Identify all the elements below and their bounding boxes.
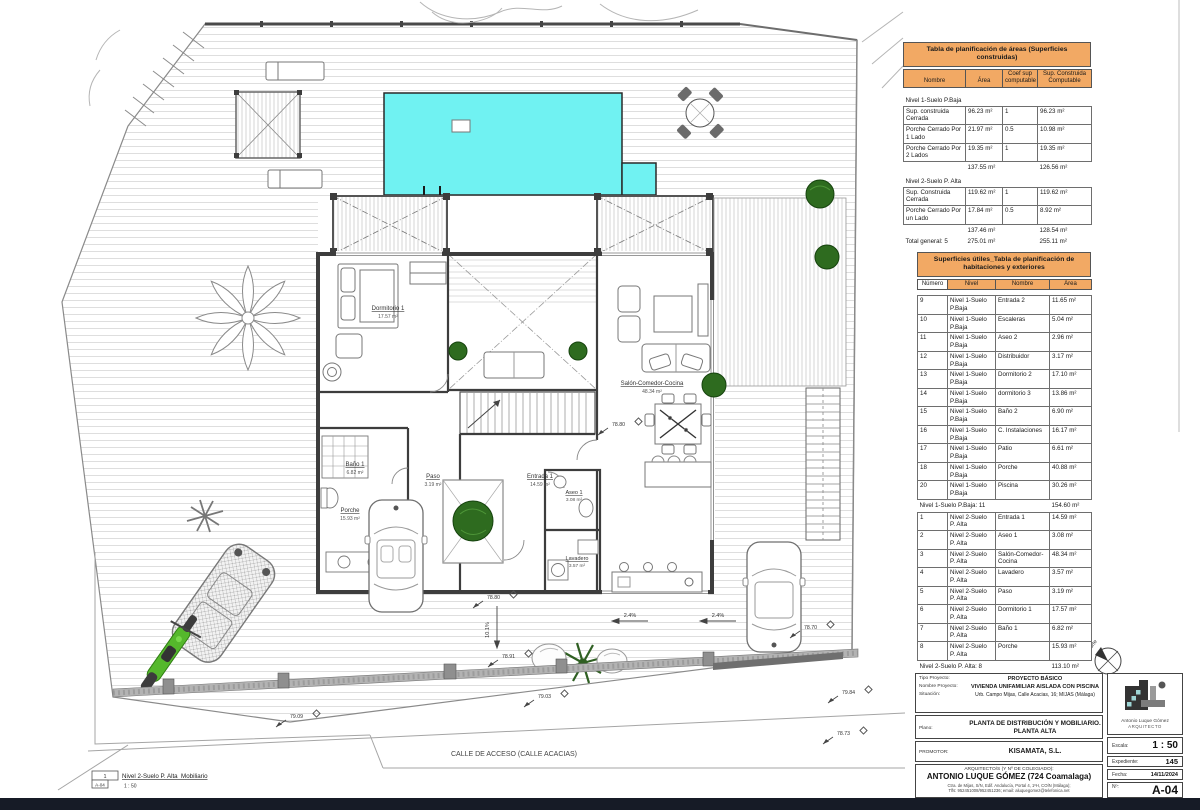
cell: 10 (918, 314, 948, 333)
cell: Nivel 2-Suelo P. Alta (948, 605, 996, 624)
cell: 1 (1003, 143, 1038, 162)
svg-text:79.09: 79.09 (290, 714, 303, 720)
cell: Nivel 1-Suelo P.Baja (948, 333, 996, 352)
rooms-table-body: 9 Nivel 1-Suelo P.Baja Entrada 2 11.65 m… (917, 295, 1092, 684)
svg-text:78.70: 78.70 (804, 625, 817, 631)
cell: 2.96 m² (1050, 333, 1092, 352)
cell: Porche Cerrado Por 2 Lados (904, 143, 966, 162)
drawing-name: PLANTA DE DISTRIBUCIÓN Y MOBILIARIO. PLA… (968, 719, 1102, 736)
cell: Dormitorio 2 (996, 370, 1050, 389)
table-row: 7 Nivel 2-Suelo P. Alta Baño 1 6.82 m² (918, 623, 1092, 642)
cell: 6 (918, 605, 948, 624)
cell: Nivel 1-Suelo P.Baja (948, 481, 996, 500)
cell: Paso (996, 586, 1050, 605)
cell: 12 (918, 351, 948, 370)
svg-text:79.84: 79.84 (842, 690, 855, 696)
col-header: Nombre (996, 279, 1050, 290)
cell: 19.35 m² (1038, 143, 1092, 162)
col-header: Número (918, 279, 948, 290)
table-row: 18 Nivel 1-Suelo P.Baja Porche 40.88 m² (918, 462, 1092, 481)
cell: Nivel 1-Suelo P.Baja (948, 407, 996, 426)
room-label: Aseo 1 (565, 490, 582, 496)
cell: 119.62 m² (966, 187, 1003, 206)
table-row: Total general: 5 275.01 m² 255.11 m² (904, 236, 1092, 248)
table-row: Nivel 1-Suelo P.Baja: 11 154.60 m² (918, 499, 1092, 512)
room-area: 3.08 m² (566, 497, 583, 503)
cell: Sup. construida Cerrada (904, 106, 966, 125)
table-row: 137.55 m² 126.56 m² (904, 162, 1092, 174)
room-label: Salón-Comedor-Cocina (621, 381, 684, 387)
cell: 16 (918, 425, 948, 444)
cell: Sup. Construida Cerrada (904, 187, 966, 206)
pergola-square (234, 90, 302, 158)
field-label: Situación: (916, 690, 968, 697)
cell: Nivel 1-Suelo P.Baja (948, 370, 996, 389)
cell: 6.61 m² (1050, 444, 1092, 463)
cell: 9 (918, 296, 948, 315)
cell: 30.26 m² (1050, 481, 1092, 500)
room-label: Porche (340, 508, 360, 514)
cell: 2 (918, 531, 948, 550)
cell: Patio (996, 444, 1050, 463)
cell: 1 (1003, 106, 1038, 125)
svg-text:79.03: 79.03 (538, 694, 551, 700)
cell: 6.90 m² (1050, 407, 1092, 426)
table-row: 13 Nivel 1-Suelo P.Baja Dormitorio 2 17.… (918, 370, 1092, 389)
cell: 14 (918, 388, 948, 407)
field-label: Expediente: (1112, 759, 1138, 765)
cell: 11 (918, 333, 948, 352)
room-area: 17.57 m² (378, 314, 398, 320)
cell: 13.86 m² (1050, 388, 1092, 407)
swimming-pool (384, 93, 656, 195)
cell: Nivel 1-Suelo P.Baja (904, 93, 966, 106)
date-box: Fecha: 14/11/2024 (1107, 769, 1183, 780)
cell: Entrada 2 (996, 296, 1050, 315)
cell: 3.08 m² (1050, 531, 1092, 550)
field-label: Nº: (1112, 783, 1119, 790)
architect-label: ARQUITECTO/S (Y Nº DE COLEGIADO): (916, 765, 1102, 772)
table-row: Porche Cerrado Por un Lado 17.84 m² 0.5 … (904, 206, 1092, 225)
rooms-table-header: Número Nivel Nombre Área (917, 279, 1092, 291)
cell: Nivel 1-Suelo P.Baja (948, 351, 996, 370)
cell: dormitorio 3 (996, 388, 1050, 407)
room-label: Lavadero (566, 556, 589, 562)
cell: Aseo 1 (996, 531, 1050, 550)
cell: Aseo 2 (996, 333, 1050, 352)
table-row: 16 Nivel 1-Suelo P.Baja C. Instalaciones… (918, 425, 1092, 444)
slope-label: 10.1% (485, 622, 491, 638)
cell: 8 (918, 642, 948, 661)
cell: Dormitorio 1 (996, 605, 1050, 624)
cell: Porche (996, 642, 1050, 661)
cell: 96.23 m² (966, 106, 1003, 125)
project-type: PROYECTO BÁSICO (968, 674, 1102, 682)
field-label: Nombre Proyecto: (916, 682, 968, 689)
areas-table-panel: Tabla de planificación de áreas (Superfi… (903, 42, 1091, 248)
table-row: 17 Nivel 1-Suelo P.Baja Patio 6.61 m² (918, 444, 1092, 463)
cell: Nivel 1-Suelo P.Baja (948, 425, 996, 444)
room-area: 48.34 m² (642, 389, 662, 395)
cell: 0.5 (1003, 206, 1038, 225)
cell: 96.23 m² (1038, 106, 1092, 125)
cell: 18 (918, 462, 948, 481)
cell: Nivel 2-Suelo P. Alta (948, 642, 996, 661)
cell: Entrada 1 (996, 512, 1050, 531)
col-header: Nivel (948, 279, 996, 290)
table-row: 9 Nivel 1-Suelo P.Baja Entrada 2 11.65 m… (918, 296, 1092, 315)
cell: 137.46 m² (966, 224, 1003, 236)
logo-box: Antonio Luque Gómez ARQUITECTO (1107, 673, 1183, 735)
table-row: 20 Nivel 1-Suelo P.Baja Piscina 30.26 m² (918, 481, 1092, 500)
cell: Nivel 1-Suelo P.Baja (948, 388, 996, 407)
date-value: 14/11/2024 (1151, 772, 1178, 778)
drawing-legend: 1 A-04 Nivel 2-Suelo P. Alta_Mobiliario … (92, 771, 208, 790)
cell: 15.93 m² (1050, 642, 1092, 661)
file-number: 145 (1165, 757, 1178, 766)
table-row: Sup. construida Cerrada 96.23 m² 1 96.23… (904, 106, 1092, 125)
pergola-band-east (594, 193, 713, 255)
room-area: 6.82 m² (347, 470, 364, 476)
cell (966, 93, 1003, 106)
scale-value: 1 : 50 (1152, 740, 1178, 751)
cell: Nivel 2-Suelo P. Alta (948, 623, 996, 642)
cell: Nivel 2-Suelo P. Alta (948, 586, 996, 605)
cell: Lavadero (996, 568, 1050, 587)
cell: 126.56 m² (1038, 162, 1092, 174)
cell: 16.17 m² (1050, 425, 1092, 444)
cell: Nivel 1-Suelo P.Baja (948, 314, 996, 333)
field-label: Tipo Proyecto: (916, 674, 968, 681)
street-label: CALLE DE ACCESO (CALLE ACACIAS) (451, 751, 577, 758)
cell: Nivel 2-Suelo P. Alta (948, 568, 996, 587)
cell: Nivel 1-Suelo P.Baja (948, 462, 996, 481)
field-label: Escala: (1112, 743, 1128, 749)
cell: 10.98 m² (1038, 125, 1092, 144)
cell (996, 499, 1050, 512)
cell: Porche Cerrado Por un Lado (904, 206, 966, 225)
plano-box: Plano: PLANTA DE DISTRIBUCIÓN Y MOBILIAR… (915, 715, 1103, 739)
cell: Nivel 2-Suelo P. Alta (904, 174, 966, 187)
architect-logo-icon (1123, 678, 1167, 714)
cell: 3 (918, 549, 948, 568)
cell: 275.01 m² (966, 236, 1003, 248)
svg-text:78.80: 78.80 (612, 422, 625, 428)
car-porch (365, 500, 427, 612)
cell: 14.59 m² (1050, 512, 1092, 531)
interior-stairs (460, 392, 595, 434)
cell: Escaleras (996, 314, 1050, 333)
bottom-bar (0, 798, 1200, 810)
cell (1038, 93, 1092, 106)
col-header: Nombre (904, 69, 966, 87)
table-row: Sup. Construida Cerrada 119.62 m² 1 119.… (904, 187, 1092, 206)
cell (1003, 236, 1038, 248)
cell (1003, 174, 1038, 187)
room-area: 15.93 m² (340, 516, 360, 522)
room-area: 14.59 m² (530, 482, 550, 488)
table-row: 6 Nivel 2-Suelo P. Alta Dormitorio 1 17.… (918, 605, 1092, 624)
cell: 119.62 m² (1038, 187, 1092, 206)
rooms-table-panel: Superficies útiles_Tabla de planificació… (917, 252, 1091, 684)
table-row: 3 Nivel 2-Suelo P. Alta Salón-Comedor-Co… (918, 549, 1092, 568)
cell: Porche Cerrado Por 1 Lado (904, 125, 966, 144)
svg-text:78.73: 78.73 (837, 731, 850, 737)
cell: 0.5 (1003, 125, 1038, 144)
cell: Nivel 2-Suelo P. Alta (948, 549, 996, 568)
cell: 15 (918, 407, 948, 426)
architect-phone: Tlfs: 952451008/952451236; email: aluque… (916, 788, 1102, 793)
table-row: 10 Nivel 1-Suelo P.Baja Escaleras 5.04 m… (918, 314, 1092, 333)
table-row: 14 Nivel 1-Suelo P.Baja dormitorio 3 13.… (918, 388, 1092, 407)
table-row: 1 Nivel 2-Suelo P. Alta Entrada 1 14.59 … (918, 512, 1092, 531)
legend-scale: 1 : 50 (124, 784, 137, 790)
cell: Nivel 1-Suelo P.Baja (948, 296, 996, 315)
cell: 7 (918, 623, 948, 642)
table-row: 12 Nivel 1-Suelo P.Baja Distribuidor 3.1… (918, 351, 1092, 370)
cell: 17.57 m² (1050, 605, 1092, 624)
promoter-name: KISAMATA, S.L. (968, 747, 1102, 757)
col-header: Sup. Construida Computable (1038, 69, 1092, 87)
room-area: 3.57 m² (569, 563, 586, 569)
cell: 20 (918, 481, 948, 500)
cell: 5.04 m² (1050, 314, 1092, 333)
areas-table-title: Tabla de planificación de áreas (Superfi… (903, 42, 1091, 67)
room-area: 3.19 m² (425, 482, 442, 488)
cell: Porche (996, 462, 1050, 481)
project-info-box: Tipo Proyecto: PROYECTO BÁSICO Nombre Pr… (915, 673, 1103, 713)
cell: 255.11 m² (1038, 236, 1092, 248)
table-row: 4 Nivel 2-Suelo P. Alta Lavadero 3.57 m² (918, 568, 1092, 587)
cell: 11.65 m² (1050, 296, 1092, 315)
cell: 1 (1003, 187, 1038, 206)
room-label: Paso (426, 474, 440, 480)
slope-label: 2.4% (712, 613, 725, 619)
cell: Salón-Comedor-Cocina (996, 549, 1050, 568)
pergola-band-west (330, 193, 450, 255)
architect-name: ANTONIO LUQUE GÓMEZ (724 Coamalaga) (916, 772, 1102, 781)
logo-title: ARQUITECTO (1108, 724, 1182, 729)
table-row: Nivel 2-Suelo P. Alta: 8 113.10 m² (918, 660, 1092, 672)
col-header: Área (966, 69, 1003, 87)
cell: 5 (918, 586, 948, 605)
cell: 17.84 m² (966, 206, 1003, 225)
cell: 17 (918, 444, 948, 463)
table-row: Nivel 2-Suelo P. Alta (904, 174, 1092, 187)
table-row: 11 Nivel 1-Suelo P.Baja Aseo 2 2.96 m² (918, 333, 1092, 352)
cell: 154.60 m² (1050, 499, 1092, 512)
cell: Nivel 2-Suelo P. Alta (948, 531, 996, 550)
cell: Nivel 2-Suelo P. Alta (948, 512, 996, 531)
col-header: Coef sup computable (1003, 69, 1038, 87)
table-row: Nivel 1-Suelo P.Baja (904, 93, 1092, 106)
cell: 13 (918, 370, 948, 389)
cell: 48.34 m² (1050, 549, 1092, 568)
svg-text:78.91: 78.91 (502, 654, 515, 660)
project-location: Urb. Campo Mijas, Calle Acacias, 16; MIJ… (968, 690, 1102, 698)
cell (904, 224, 966, 236)
legend-index: 1 (103, 774, 106, 780)
table-row: Porche Cerrado Por 2 Lados 19.35 m² 1 19… (904, 143, 1092, 162)
cell: 3.57 m² (1050, 568, 1092, 587)
field-label: PROMOTOR: (916, 748, 968, 755)
cell: 17.10 m² (1050, 370, 1092, 389)
field-label: Plano: (916, 724, 968, 731)
room-label: Baño 1 (345, 462, 365, 468)
courtyard-planter (443, 480, 503, 563)
room-label: Dormitorio 1 (372, 306, 405, 312)
cell: Piscina (996, 481, 1050, 500)
header-row: Número Nivel Nombre Área (918, 279, 1092, 290)
table-row: 8 Nivel 2-Suelo P. Alta Porche 15.93 m² (918, 642, 1092, 661)
rooms-table-title: Superficies útiles_Tabla de planificació… (917, 252, 1091, 277)
cell (1003, 162, 1038, 174)
sheet-number-box: Nº: A-04 (1107, 782, 1183, 798)
cell (904, 162, 966, 174)
cell: 8.92 m² (1038, 206, 1092, 225)
cell (1003, 93, 1038, 106)
table-row: 137.46 m² 128.54 m² (904, 224, 1092, 236)
cell (966, 174, 1003, 187)
col-header: Área (1050, 279, 1092, 290)
table-row: 2 Nivel 2-Suelo P. Alta Aseo 1 3.08 m² (918, 531, 1092, 550)
cell: Nivel 1-Suelo P.Baja: 11 (918, 499, 948, 512)
table-row: 15 Nivel 1-Suelo P.Baja Baño 2 6.90 m² (918, 407, 1092, 426)
promotor-box: PROMOTOR: KISAMATA, S.L. (915, 741, 1103, 762)
flower-shrub (196, 266, 300, 370)
cell: Nivel 1-Suelo P.Baja (948, 444, 996, 463)
cell: Distribuidor (996, 351, 1050, 370)
cell: Baño 1 (996, 623, 1050, 642)
areas-table-body: Nivel 1-Suelo P.Baja Sup. construida Cer… (903, 93, 1092, 248)
file-box: Expediente: 145 (1107, 756, 1183, 767)
cell (1038, 174, 1092, 187)
architect-box: ARQUITECTO/S (Y Nº DE COLEGIADO): ANTONI… (915, 764, 1103, 798)
cell: 19.35 m² (966, 143, 1003, 162)
cell: 40.88 m² (1050, 462, 1092, 481)
cell: Baño 2 (996, 407, 1050, 426)
header-row: Nombre Área Coef sup computable Sup. Con… (904, 69, 1092, 87)
cell: C. Instalaciones (996, 425, 1050, 444)
cell: 6.82 m² (1050, 623, 1092, 642)
cell: Total general: 5 (904, 236, 966, 248)
cell: 3.19 m² (1050, 586, 1092, 605)
areas-table-header: Nombre Área Coef sup computable Sup. Con… (903, 69, 1092, 88)
field-label: Fecha: (1112, 772, 1127, 778)
cell: 137.55 m² (966, 162, 1003, 174)
cell: 4 (918, 568, 948, 587)
cell (1003, 224, 1038, 236)
legend-title: Nivel 2-Suelo P. Alta_Mobiliario (122, 773, 208, 780)
svg-text:78.80: 78.80 (487, 595, 500, 601)
cell: 1 (918, 512, 948, 531)
cell (996, 660, 1050, 672)
sheet-number: A-04 (1152, 783, 1178, 797)
cell: 3.17 m² (1050, 351, 1092, 370)
scale-box: Escala: 1 : 50 (1107, 737, 1183, 754)
cell: 128.54 m² (1038, 224, 1092, 236)
cell: 113.10 m² (1050, 660, 1092, 672)
slope-label: 2.4% (624, 613, 637, 619)
cell: 21.97 m² (966, 125, 1003, 144)
cell: Nivel 2-Suelo P. Alta: 8 (918, 660, 948, 672)
project-name: VIVIENDA UNIFAMILIAR AISLADA CON PISCINA (968, 682, 1102, 690)
table-row: Porche Cerrado Por 1 Lado 21.97 m² 0.5 1… (904, 125, 1092, 144)
table-row: 5 Nivel 2-Suelo P. Alta Paso 3.19 m² (918, 586, 1092, 605)
legend-sheet: A-04 (95, 783, 105, 788)
room-label: Entrada 1 (527, 474, 554, 480)
